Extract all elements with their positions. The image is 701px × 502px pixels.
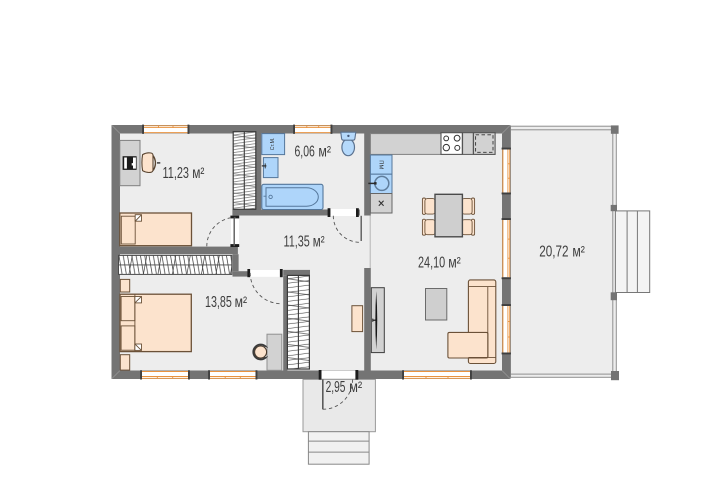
svg-text:20,72: 20,72: [539, 243, 568, 260]
svg-text:ПМ: ПМ: [378, 160, 384, 169]
svg-text:11,23: 11,23: [163, 165, 190, 182]
svg-text:13,85: 13,85: [205, 294, 232, 311]
svg-text:м²: м²: [448, 254, 461, 271]
svg-text:м²: м²: [349, 379, 362, 396]
svg-text:24,10: 24,10: [418, 254, 445, 271]
svg-text:м²: м²: [318, 144, 331, 161]
svg-text:м²: м²: [235, 294, 247, 311]
svg-text:2,95: 2,95: [326, 379, 346, 396]
svg-text:Ст.М.: Ст.М.: [270, 138, 276, 151]
svg-text:м²: м²: [572, 243, 585, 260]
svg-text:м²: м²: [313, 233, 325, 250]
svg-text:6,06: 6,06: [295, 144, 315, 161]
svg-text:11,35: 11,35: [284, 233, 310, 250]
svg-text:м²: м²: [192, 165, 204, 182]
